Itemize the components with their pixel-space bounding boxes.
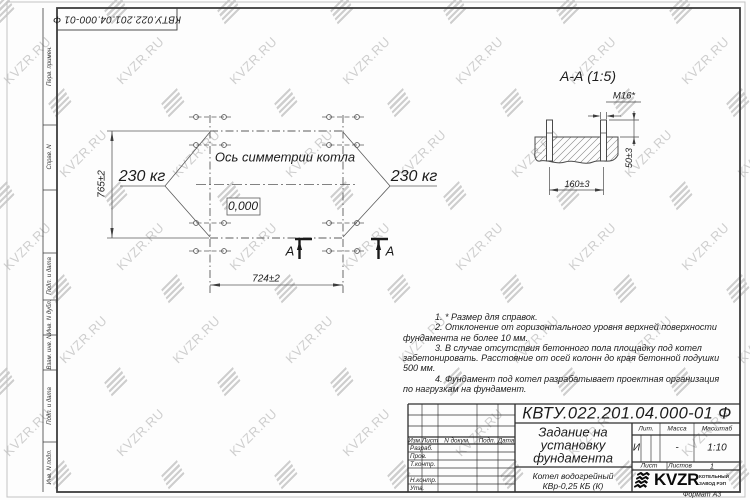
- title-block-row-utv: Утв.: [410, 485, 424, 492]
- note-line: забетонировать. Расстояние от осей колон…: [403, 353, 739, 363]
- title-block-header-list: Лист: [422, 437, 438, 444]
- section-letter-left: А: [286, 244, 295, 259]
- section-letter-right: А: [386, 244, 395, 259]
- technical-notes: 1. * Размер для справок. 2. Отклонение о…: [403, 312, 739, 394]
- title-block-lit-label: Лит.: [638, 426, 653, 433]
- title-block-row-tkontr: Т.контр.: [410, 461, 435, 468]
- note-line: 4. Фундамент под котел разрабатывает про…: [403, 374, 739, 384]
- note-line: 3. В случае отсутствия бетонного пола пл…: [403, 343, 739, 353]
- format-label: Формат А3: [683, 492, 721, 499]
- plan-load-right: 230 кг: [391, 168, 438, 186]
- title-block-row-nkontr: Н.контр.: [410, 477, 437, 484]
- plan-axis-label: Ось симметрии котла: [215, 150, 355, 165]
- title-block-header-doc: N докум.: [444, 437, 469, 444]
- section-marks: [295, 239, 388, 259]
- note-line: фундамента не более 10 мм.: [403, 333, 739, 343]
- section-dim-protrusion: 50±3: [624, 148, 634, 168]
- note-line: 1. * Размер для справок.: [403, 312, 739, 322]
- title-block-header-podp: Подп.: [479, 437, 496, 444]
- margin-field-sprav-n: Справ. N: [47, 144, 53, 169]
- title-block-row-prov: Пров.: [410, 453, 427, 460]
- margin-field-podp-data-2: Подп. и дата: [47, 387, 53, 425]
- margin-field-inv-n-podl: Инв. N подл.: [47, 449, 53, 484]
- title-block-massa-label: Масса: [667, 426, 686, 433]
- title-block-masshtab-label: Масштаб: [702, 426, 732, 433]
- note-line: 500 мм.: [403, 363, 739, 373]
- kvzr-logo-text: KVZR: [654, 470, 699, 490]
- title-block-list-label: Лист: [641, 463, 658, 470]
- title-block-product-line1: Котел водогрейный: [533, 471, 614, 481]
- margin-field-vzam-inv-n: Взам. инв. N: [47, 335, 53, 370]
- section-dim-spacing: 160±3: [565, 179, 590, 189]
- note-line: 2. Отклонение от горизонтального уровня …: [403, 322, 739, 332]
- plan-dim-height: 765±2: [97, 170, 108, 198]
- margin-field-inv-n-dubl: Инв. N дубл.: [47, 300, 53, 335]
- kvzr-logo-icon: [633, 472, 653, 494]
- bolt-holes: [194, 115, 360, 254]
- kvzr-logo-subtitle-line2: ЗАВОД РЭП: [699, 481, 726, 488]
- title-block-masshtab-value: 1:10: [707, 443, 726, 454]
- plan-lines: [107, 115, 437, 293]
- top-stamp-doc-number: КВТУ.022.201.04.000-01 Ф: [53, 14, 181, 25]
- title-block-listov-value: 1: [710, 462, 714, 471]
- title-block-header-data: Дата: [498, 437, 515, 444]
- title-block-title-line3: фундамента: [533, 451, 613, 466]
- title-block-header-izm: Изм.: [408, 437, 421, 444]
- margin-field-perv-primen: Перв. примен.: [47, 46, 53, 86]
- title-block-massa-value: -: [675, 443, 678, 454]
- plan-load-left: 230 кг: [119, 168, 166, 186]
- note-line: по нагрузкам на фундамент.: [403, 384, 739, 394]
- plan-dim-width: 724±2: [252, 274, 280, 285]
- title-block-lit-value: И: [633, 443, 640, 454]
- title-block-doc-number: КВТУ.022.201.04.000-01 Ф: [522, 404, 731, 423]
- title-block-listov-label: Листов: [668, 463, 692, 470]
- section-title: А-А (1:5): [560, 68, 616, 84]
- title-block-product-line2: КВр-0,25 КБ (К): [543, 481, 604, 491]
- title-block-row-razrab: Разраб.: [410, 445, 433, 452]
- margin-field-podp-data-1: Подп. и дата: [47, 257, 53, 295]
- section-bolt-label: M16*: [613, 91, 635, 102]
- drawing-sheet: KVZR.RUKVZR.RUKVZR.RUKVZR.RUKVZR.RUKVZR.…: [0, 0, 750, 500]
- plan-level-mark: 0,000: [228, 199, 258, 213]
